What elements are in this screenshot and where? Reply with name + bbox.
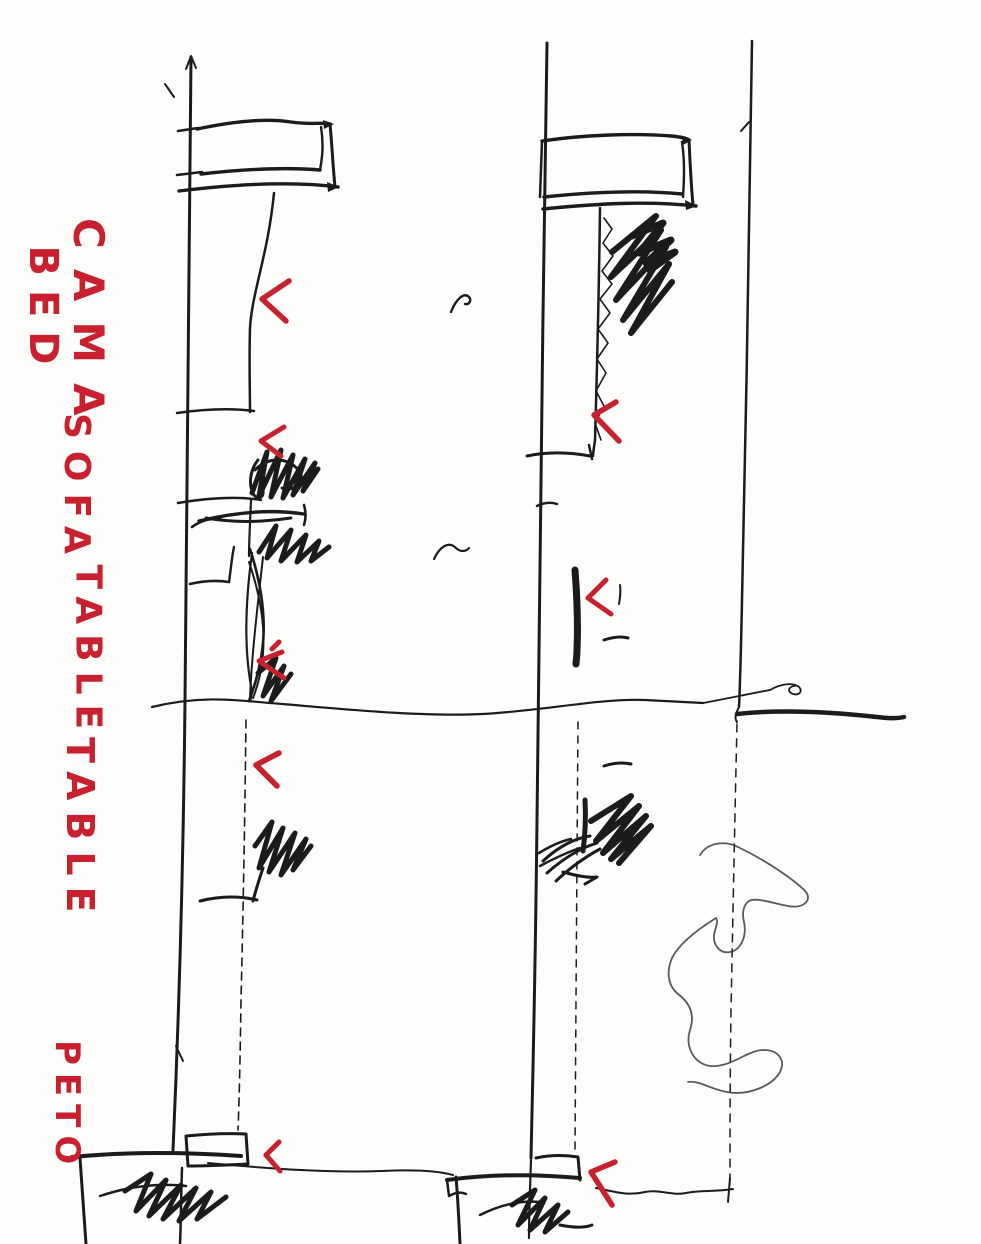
base-right-vertical bbox=[456, 1177, 460, 1244]
left-wall-inner-dashed-lower bbox=[238, 720, 246, 1130]
plant-arrow-leaf bbox=[563, 872, 597, 884]
right-wall-inner-dashed-lower bbox=[575, 722, 578, 1150]
label-bed-english: BED bbox=[21, 218, 65, 406]
bed-left-wall-tick-bottom bbox=[177, 172, 202, 175]
base-right-tail bbox=[560, 1225, 592, 1227]
right-ledge-455 bbox=[527, 453, 590, 456]
left-sofa-scribble bbox=[192, 450, 329, 562]
loop-doodle bbox=[669, 843, 808, 1093]
right-bed-box bbox=[540, 135, 697, 333]
ground-wavy-left bbox=[152, 699, 703, 714]
right-tick-585 bbox=[619, 585, 620, 604]
right-dash-765 bbox=[604, 763, 631, 766]
left-wall-step-horizontal bbox=[190, 581, 229, 584]
bed-right-bottom-outer bbox=[543, 203, 696, 209]
checkmark-right-1 bbox=[594, 402, 619, 441]
left-tick-slash bbox=[165, 84, 174, 97]
left-wall-outer-line bbox=[173, 57, 191, 1150]
left-wall-division-2 bbox=[178, 498, 261, 503]
bed-right-top-edge bbox=[542, 135, 689, 141]
bed-left-top-edge bbox=[197, 120, 330, 129]
squiggle-upper bbox=[451, 295, 470, 312]
plant-stem bbox=[583, 800, 585, 851]
bed-left-bottom-inner bbox=[201, 169, 320, 174]
squiggle-marks bbox=[434, 295, 470, 559]
table2-tail bbox=[253, 868, 263, 901]
left-shelf-stroke bbox=[200, 897, 257, 901]
label-table-upper: TABLE bbox=[68, 565, 108, 730]
label-sofa: SOFA bbox=[56, 413, 96, 553]
left-wall-inner-line-mid bbox=[249, 500, 251, 556]
left-lower-table-scribble bbox=[253, 822, 311, 901]
base-right-long-line bbox=[447, 1175, 580, 1180]
label-bed-spanish: CAMA bbox=[65, 218, 111, 406]
right-edge-line-upper bbox=[739, 41, 752, 707]
base-left-box bbox=[186, 1134, 248, 1166]
bed-right-bottom-inner bbox=[544, 192, 682, 197]
checkmark-left-1 bbox=[262, 281, 289, 321]
right-edge-branch bbox=[741, 122, 749, 131]
red-checkmarks bbox=[256, 281, 619, 1205]
base-left-scribble bbox=[125, 1174, 226, 1221]
bed-right-right-edge-outer bbox=[689, 140, 693, 205]
sofa-under-scribble bbox=[259, 526, 329, 562]
sketch-page: CAMA BED SOFA TABLE TABLE PETO bbox=[0, 0, 981, 1244]
base-left-below-vertical bbox=[180, 1168, 182, 1244]
left-bed-box bbox=[177, 120, 339, 192]
sofa-seat-left-ext bbox=[192, 519, 220, 527]
squiggle-lower bbox=[434, 545, 469, 559]
base-right-wavy bbox=[596, 1188, 733, 1194]
bed-left-right-edge-outer bbox=[330, 124, 335, 187]
bed-right-left-edge bbox=[540, 141, 542, 197]
right-wall-thick-stroke bbox=[575, 570, 577, 664]
left-base-parapet bbox=[72, 1134, 453, 1244]
bed-left-right-edge-inner bbox=[320, 127, 323, 170]
bed-left-wall-tick-top bbox=[178, 128, 198, 131]
label-table-lower: TABLE bbox=[58, 737, 100, 913]
checkmark-left-5 bbox=[266, 1142, 280, 1171]
right-dash-639 bbox=[604, 637, 628, 640]
checkmark-right-3 bbox=[591, 1162, 615, 1205]
checkmark-left-3-dash bbox=[272, 642, 279, 649]
label-parapet: PETO bbox=[47, 1040, 85, 1160]
left-wall-step-vertical bbox=[229, 547, 234, 582]
bed-left-bottom-outer bbox=[179, 184, 338, 191]
checkmark-right-2 bbox=[588, 580, 611, 614]
label-cama-bed: CAMA BED bbox=[11, 218, 111, 406]
checkmark-left-4 bbox=[256, 753, 279, 786]
plant-blob bbox=[591, 796, 651, 863]
bed-left-arrowhead-bottom bbox=[327, 182, 339, 192]
ink-sketch bbox=[0, 0, 981, 1244]
bed-left-arrowhead-top bbox=[323, 120, 334, 129]
ground-thick-right bbox=[737, 711, 904, 718]
ground-wavy-right-thin bbox=[703, 690, 770, 703]
bed-right-right-edge-inner bbox=[682, 142, 684, 197]
right-wall-section bbox=[527, 43, 631, 1238]
right-plant-table-scribble bbox=[539, 796, 651, 884]
base-left-long-line bbox=[72, 1153, 241, 1157]
right-base-parapet bbox=[447, 1156, 733, 1244]
ground-curl bbox=[770, 684, 801, 694]
far-right-edge bbox=[669, 41, 808, 1202]
